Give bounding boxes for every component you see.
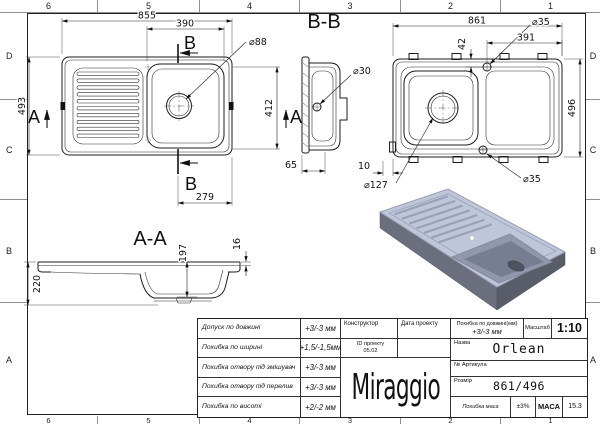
render-3d [368, 178, 586, 320]
dim-bowl-depth: 197 [178, 244, 189, 262]
brand-logo: Miraggio [351, 367, 440, 408]
dim-220: 220 [24, 262, 158, 305]
dim-section-height: 220 [32, 275, 43, 293]
section-b-label: B [185, 174, 197, 194]
grid-row-label: D [586, 13, 600, 100]
section-a-label: A [28, 107, 40, 127]
project-date-label: Дата проекту [398, 319, 450, 339]
dim-clip-offset: 10 [358, 161, 370, 172]
mounting-clips [390, 54, 549, 163]
tolerance-value: +3/-3 мм [301, 378, 341, 398]
brand-logo-cell: Miraggio [341, 358, 450, 417]
constructor-label: Конструктор [341, 319, 398, 339]
grid-col-label: 3 [300, 0, 401, 13]
project-id-label: ID проекту [357, 341, 384, 347]
drainboard-ribs [77, 72, 139, 138]
drain-hole-under [425, 90, 461, 126]
title-block-right: Похибка по довжині(мм) +3/-3 мм Масштаб … [451, 319, 587, 417]
dim-tap-offset-y: 42 [457, 38, 468, 50]
mass-label: МАСА [536, 397, 563, 417]
title-block: Допуск по довжині +3/-3 мм Похибка по ши… [197, 318, 588, 418]
tolerance-value: +3/-3 мм [301, 319, 341, 339]
grid-col-label: 1 [501, 0, 600, 13]
dim-493: 493 [17, 57, 60, 155]
article-label: № Артикула [454, 362, 487, 368]
tolerance-value: +3/-3 мм [301, 358, 341, 378]
tolerance-value: +1,5/-1,5мм [301, 339, 341, 359]
mass-tolerance-value: ±3% [511, 397, 536, 417]
dim-10: 10 [358, 159, 403, 176]
dim-391: 391 [487, 33, 562, 63]
project-id-cell: ID проекту 05.02 [341, 339, 398, 359]
grid-band-right: D C B A [586, 13, 600, 416]
tap-holes [479, 63, 491, 154]
article-row: № Артикула [451, 361, 587, 377]
dim-65: 65 [285, 152, 325, 174]
tolerance-label: Похибка отвору під перелив [198, 378, 301, 398]
section-b-bottom-mark: B [178, 149, 198, 194]
length-tolerance-value: +3/-3 мм [472, 327, 502, 336]
size-row: Розмір 861/496 [451, 377, 587, 397]
dim-412: 412 [232, 67, 280, 149]
size-label: Розмір [454, 378, 472, 384]
dim-197: 197 [177, 244, 197, 297]
section-bb-title: B-B [307, 13, 340, 33]
dim-16: 16 [232, 238, 251, 276]
tolerance-label: Похибка по висоті [198, 397, 301, 417]
grid-col-label: 6 [0, 416, 98, 424]
size-value: 861/496 [493, 379, 545, 393]
scale-value: 1:10 [552, 319, 587, 338]
dim-tap-dia-top: ⌀35 [532, 17, 550, 28]
dim-rim-thickness: 16 [232, 238, 243, 250]
dim-drain-dia: ⌀88 [249, 37, 267, 48]
section-a-left-mark: A [28, 107, 47, 128]
grid-row-label: B [586, 200, 600, 303]
sink-render [380, 189, 565, 310]
dim-overall-width: 855 [138, 11, 156, 22]
empty-cell [398, 339, 450, 359]
tolerance-label: Допуск по довжині [198, 319, 301, 339]
sink-underside-outline [393, 59, 562, 157]
dim-overall-height: 493 [17, 97, 28, 115]
sink-outline [61, 57, 234, 155]
name-row: Назва Orlean [451, 339, 587, 361]
dim-underside-width: 861 [468, 16, 486, 27]
section-aa-profile [38, 262, 240, 303]
dim-edge: 65 [285, 160, 297, 171]
tolerance-value: +2/-2 мм [301, 397, 341, 417]
section-b-top-mark: B [178, 33, 198, 63]
mass-row: Похибка маса ±3% МАСА 15.3 [451, 397, 587, 417]
grid-row-label: A [586, 303, 600, 416]
grid-col-label: 5 [98, 416, 200, 424]
project-id-value: 05.02 [364, 348, 378, 354]
dim-496: 496 [564, 59, 583, 157]
section-aa-title: A-A [133, 228, 167, 250]
length-tolerance-cell: Похибка по довжині(мм) +3/-3 мм [451, 319, 524, 338]
grid-col-label: 2 [401, 0, 501, 13]
drawing-sheet: 6 5 4 3 2 1 6 5 4 3 2 1 D C B A D C B A [0, 0, 600, 424]
title-block-middle: Конструктор Дата проекту ID проекту 05.0… [341, 319, 451, 417]
dim-bowl-height: 412 [264, 99, 275, 117]
grid-row-label: C [586, 100, 600, 200]
top-plan-view: 855 390 B ⌀88 493 A 412 [14, 10, 304, 215]
name-label: Назва [454, 340, 470, 346]
section-aa-view: A-A 220 197 16 [18, 196, 273, 336]
mass-value: 15.3 [563, 397, 587, 417]
tolerance-label: Похибка отвору під змішувач [198, 358, 301, 378]
dim-bowl-width: 390 [176, 19, 194, 30]
tolerance-label: Похибка по ширині [198, 339, 301, 359]
dim-drain-leader: ⌀88 [186, 37, 267, 99]
mass-tolerance-label: Похибка маса [451, 397, 511, 417]
scale-label: Масштаб [524, 319, 552, 338]
dim-tap-offset-x: 391 [517, 33, 535, 44]
dim-underside-height: 496 [567, 99, 578, 117]
tolerance-table: Допуск по довжині +3/-3 мм Похибка по ши… [198, 319, 341, 417]
render-tap-hole [470, 236, 474, 240]
section-b-label: B [184, 33, 196, 53]
model-name: Orlean [493, 342, 546, 357]
